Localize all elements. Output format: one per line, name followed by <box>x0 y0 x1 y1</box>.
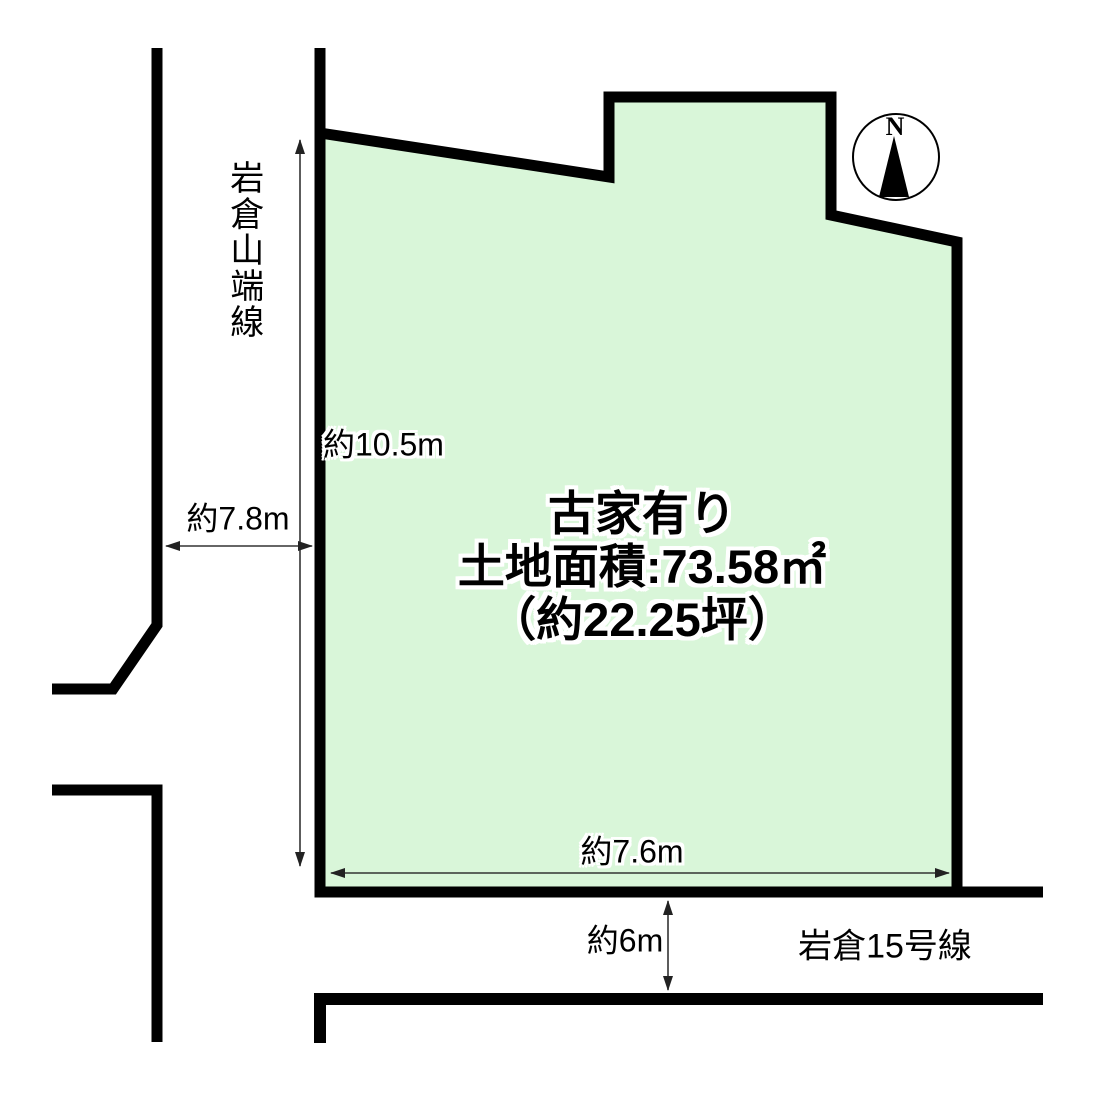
compass-north-label: N <box>886 112 905 141</box>
south-road-label: 岩倉15号線 <box>798 928 972 965</box>
compass: N <box>853 112 939 200</box>
road-line-west-lower <box>52 790 157 1042</box>
road-line-west-upper <box>52 48 157 689</box>
south-frontage-dimension-label: 約7.6m <box>580 834 683 869</box>
west-road-label: 岩倉山端線 <box>224 160 261 340</box>
parcel-title-line3: （約22.25坪） <box>458 593 826 646</box>
parcel-title-block: 古家有り 土地面積:73.58㎡ （約22.25坪） <box>458 487 826 646</box>
plot-diagram: N 岩倉山端線 約10.5m 約7.8m 約7.6m 約6m 岩倉15号線 古家… <box>0 0 1093 1093</box>
south-road-width-dimension-label: 約6m <box>587 923 663 958</box>
parcel-title-line2: 土地面積:73.58㎡ <box>458 540 826 593</box>
west-road-width-dimension-label: 約7.8m <box>186 501 289 536</box>
parcel-title-line1: 古家有り <box>458 487 826 540</box>
west-frontage-dimension-label: 約10.5m <box>323 427 444 462</box>
road-line-south-lower <box>320 999 1043 1043</box>
